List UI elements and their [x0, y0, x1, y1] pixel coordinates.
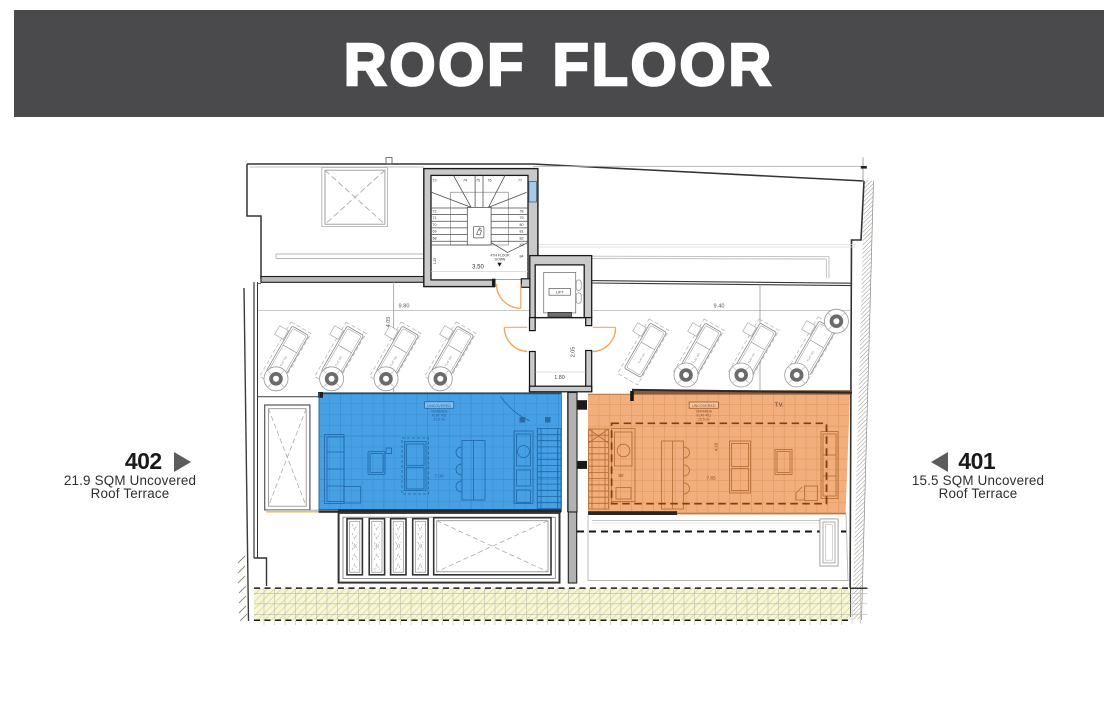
svg-text:DOWN: DOWN: [495, 257, 506, 261]
svg-text:70: 70: [433, 223, 437, 227]
svg-text:9.80: 9.80: [399, 304, 410, 310]
svg-text:79: 79: [520, 216, 524, 220]
svg-text:UNCOVERED: UNCOVERED: [692, 404, 716, 408]
svg-text:82: 82: [520, 236, 524, 240]
svg-text:69: 69: [433, 230, 437, 234]
svg-text:84: 84: [520, 255, 524, 259]
svg-text:68: 68: [433, 236, 437, 240]
svg-text:15.5 m²: 15.5 m²: [698, 418, 710, 422]
svg-text:78: 78: [520, 210, 524, 214]
svg-text:4.10: 4.10: [714, 442, 719, 451]
svg-text:75: 75: [476, 179, 480, 183]
svg-text:LIFT: LIFT: [556, 291, 564, 295]
svg-text:3.50: 3.50: [472, 265, 484, 271]
svg-text:77: 77: [518, 179, 522, 183]
svg-text:UNCOVERED: UNCOVERED: [427, 404, 451, 408]
svg-text:80: 80: [619, 473, 624, 478]
svg-text:1.80: 1.80: [554, 375, 565, 381]
svg-text:76: 76: [488, 179, 492, 183]
svg-text:7.00: 7.00: [434, 474, 444, 480]
svg-text:T.V.: T.V.: [774, 403, 784, 409]
svg-text:81: 81: [520, 230, 524, 234]
svg-text:80: 80: [520, 223, 524, 227]
svg-text:74: 74: [463, 179, 467, 183]
svg-text:7.65: 7.65: [706, 476, 716, 482]
svg-text:2.05: 2.05: [571, 347, 577, 358]
svg-text:21.9 m²: 21.9 m²: [433, 418, 445, 422]
svg-text:71: 71: [433, 216, 437, 220]
svg-text:72: 72: [433, 210, 437, 214]
svg-text:83: 83: [520, 243, 524, 247]
svg-text:4.05: 4.05: [386, 317, 392, 328]
svg-text:1.25: 1.25: [433, 258, 437, 265]
svg-text:9.40: 9.40: [714, 304, 725, 310]
svg-text:73: 73: [433, 179, 437, 183]
